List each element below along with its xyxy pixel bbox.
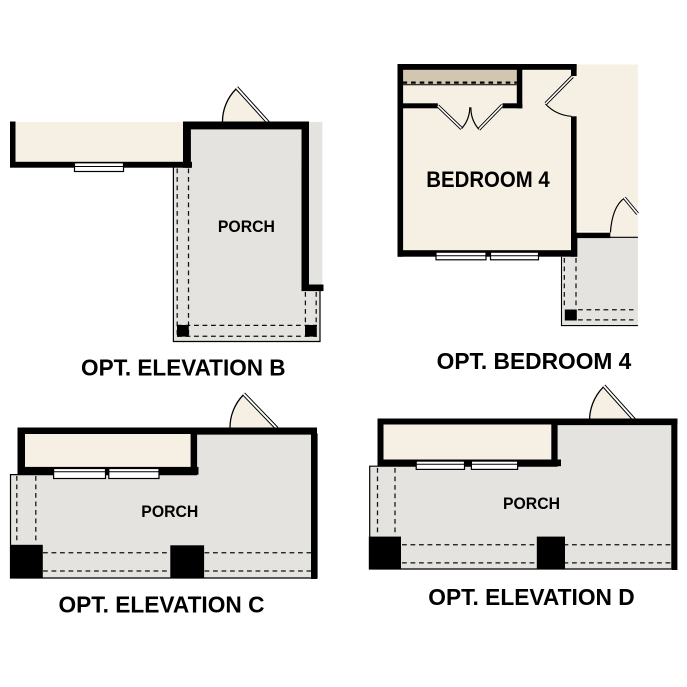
svg-text:PORCH: PORCH [503,494,560,513]
svg-text:PORCH: PORCH [218,217,275,236]
svg-text:PORCH: PORCH [141,502,198,521]
svg-text:OPT. ELEVATION C: OPT. ELEVATION C [59,591,265,617]
svg-text:OPT. ELEVATION D: OPT. ELEVATION D [428,584,634,610]
svg-text:OPT. ELEVATION B: OPT. ELEVATION B [81,354,286,380]
svg-text:OPT. BEDROOM 4: OPT. BEDROOM 4 [437,348,632,374]
svg-text:BEDROOM 4: BEDROOM 4 [426,167,550,192]
